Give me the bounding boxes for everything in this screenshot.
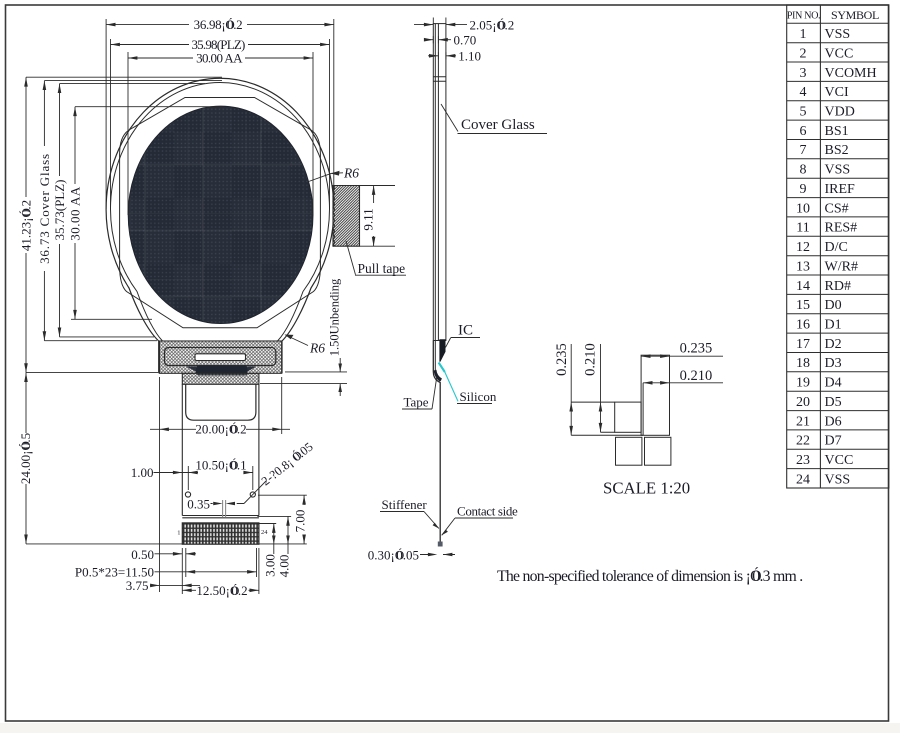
svg-text:VCC: VCC bbox=[825, 453, 854, 468]
svg-text:36.73 Cover Glass: 36.73 Cover Glass bbox=[37, 153, 52, 264]
svg-text:IC: IC bbox=[458, 323, 473, 339]
svg-text:2.05¡Ó0.2: 2.05¡Ó0.2 bbox=[470, 17, 515, 32]
svg-text:30.00 AA: 30.00 AA bbox=[68, 186, 83, 241]
svg-text:6: 6 bbox=[800, 124, 807, 139]
svg-text:VSS: VSS bbox=[825, 163, 851, 178]
svg-text:VSS: VSS bbox=[825, 472, 851, 487]
svg-text:BS1: BS1 bbox=[825, 124, 849, 139]
svg-text:14: 14 bbox=[796, 279, 810, 294]
svg-text:41.23¡Ó0.2: 41.23¡Ó0.2 bbox=[19, 200, 34, 251]
svg-text:D2: D2 bbox=[825, 337, 842, 352]
svg-text:1: 1 bbox=[177, 530, 180, 537]
svg-text:5: 5 bbox=[800, 105, 807, 120]
svg-text:RD#: RD# bbox=[825, 279, 851, 294]
svg-text:24: 24 bbox=[796, 472, 810, 487]
svg-text:D1: D1 bbox=[825, 318, 842, 333]
svg-text:36.98¡Ó0.2: 36.98¡Ó0.2 bbox=[194, 17, 243, 32]
svg-text:0.35: 0.35 bbox=[187, 497, 210, 512]
svg-text:10.50¡Ó0.1: 10.50¡Ó0.1 bbox=[195, 458, 246, 473]
svg-text:3.00: 3.00 bbox=[263, 554, 278, 577]
svg-text:12.50¡Ó0.2: 12.50¡Ó0.2 bbox=[196, 583, 247, 598]
svg-text:21: 21 bbox=[796, 414, 810, 429]
svg-text:0.210: 0.210 bbox=[583, 343, 599, 376]
svg-text:SYMBOL: SYMBOL bbox=[831, 8, 879, 22]
svg-text:35.73(PLZ): 35.73(PLZ) bbox=[52, 179, 67, 240]
svg-text:16: 16 bbox=[796, 318, 810, 333]
svg-text:18: 18 bbox=[796, 356, 810, 371]
svg-text:D4: D4 bbox=[825, 376, 842, 391]
svg-text:7: 7 bbox=[800, 143, 807, 158]
svg-text:22: 22 bbox=[796, 434, 810, 449]
svg-text:Stiffener: Stiffener bbox=[382, 497, 428, 512]
svg-text:D7: D7 bbox=[825, 434, 842, 449]
svg-text:0.50: 0.50 bbox=[131, 547, 154, 562]
svg-text:Pull tape: Pull tape bbox=[358, 261, 406, 276]
svg-text:11: 11 bbox=[796, 221, 809, 236]
svg-text:4.00: 4.00 bbox=[277, 555, 292, 578]
svg-text:24: 24 bbox=[261, 529, 268, 536]
svg-text:D3: D3 bbox=[825, 356, 842, 371]
svg-text:10: 10 bbox=[796, 201, 810, 216]
svg-text:The non-specified tolerance of: The non-specified tolerance of dimension… bbox=[497, 566, 802, 585]
svg-text:9.11: 9.11 bbox=[361, 208, 376, 230]
svg-text:1.10: 1.10 bbox=[458, 48, 481, 63]
svg-text:Contact side: Contact side bbox=[457, 504, 518, 519]
svg-text:9: 9 bbox=[800, 182, 807, 197]
svg-text:Cover Glass: Cover Glass bbox=[461, 117, 535, 133]
svg-text:D0: D0 bbox=[825, 298, 842, 313]
svg-text:0.235: 0.235 bbox=[680, 341, 713, 357]
svg-text:3.75: 3.75 bbox=[126, 578, 149, 593]
svg-text:0.70: 0.70 bbox=[454, 32, 477, 47]
svg-text:12: 12 bbox=[796, 240, 810, 255]
svg-text:1.00: 1.00 bbox=[131, 465, 154, 480]
svg-text:20: 20 bbox=[796, 395, 810, 410]
svg-text:R6: R6 bbox=[343, 166, 359, 181]
svg-text:PIN NO.: PIN NO. bbox=[787, 11, 820, 22]
svg-text:CS#: CS# bbox=[825, 201, 849, 216]
svg-text:2: 2 bbox=[800, 46, 807, 61]
svg-text:1.50Unbending: 1.50Unbending bbox=[328, 278, 342, 356]
svg-text:W/R#: W/R# bbox=[825, 259, 858, 274]
svg-text:D5: D5 bbox=[825, 395, 842, 410]
svg-text:0.30¡Ó0.05: 0.30¡Ó0.05 bbox=[368, 548, 419, 563]
svg-text:20.00¡Ó0.2: 20.00¡Ó0.2 bbox=[195, 422, 246, 437]
svg-text:D6: D6 bbox=[825, 414, 842, 429]
svg-text:30.00 AA: 30.00 AA bbox=[196, 51, 243, 66]
svg-text:7.00: 7.00 bbox=[293, 510, 308, 533]
svg-text:Tape: Tape bbox=[404, 395, 429, 410]
svg-text:17: 17 bbox=[796, 337, 810, 352]
svg-text:R6: R6 bbox=[309, 341, 325, 356]
svg-text:D/C: D/C bbox=[825, 240, 848, 255]
svg-text:15: 15 bbox=[796, 298, 810, 313]
svg-text:VCI: VCI bbox=[825, 85, 849, 100]
svg-text:VDD: VDD bbox=[825, 105, 855, 120]
svg-text:24.00¡Ó0.5: 24.00¡Ó0.5 bbox=[18, 433, 33, 484]
svg-text:Silicon: Silicon bbox=[460, 389, 497, 404]
svg-text:IREF: IREF bbox=[825, 182, 856, 197]
svg-text:0.235: 0.235 bbox=[554, 343, 570, 376]
svg-text:1: 1 bbox=[800, 27, 807, 42]
svg-text:3: 3 bbox=[800, 66, 807, 81]
svg-text:BS2: BS2 bbox=[825, 143, 849, 158]
svg-text:RES#: RES# bbox=[825, 221, 858, 236]
svg-text:SCALE 1:20: SCALE 1:20 bbox=[603, 479, 690, 498]
svg-text:VCOMH: VCOMH bbox=[825, 66, 877, 81]
svg-text:VSS: VSS bbox=[825, 27, 851, 42]
svg-text:VCC: VCC bbox=[825, 46, 854, 61]
svg-text:19: 19 bbox=[796, 376, 810, 391]
svg-text:23: 23 bbox=[796, 453, 810, 468]
svg-text:8: 8 bbox=[800, 163, 807, 178]
svg-text:4: 4 bbox=[800, 85, 807, 100]
svg-text:13: 13 bbox=[796, 259, 810, 274]
svg-text:0.210: 0.210 bbox=[680, 368, 713, 384]
